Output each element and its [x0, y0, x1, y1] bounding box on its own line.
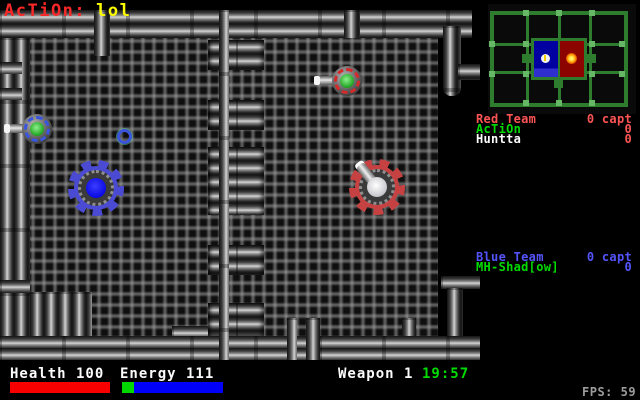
- clan-name-label: AcTiOn:: [4, 1, 86, 21]
- game-window: AcTiOn:lol Red Team: [0, 0, 640, 400]
- player-name: MH-Shad[ow]: [476, 262, 559, 272]
- fps-counter: FPS: 59: [582, 385, 636, 399]
- pipe-stub-left-2: [0, 88, 22, 100]
- minimap-red-base: [560, 41, 584, 77]
- minimap-blue-base: [534, 41, 558, 77]
- pipe-stub-left-1: [0, 62, 22, 74]
- health-label: Health 100: [10, 368, 104, 380]
- pipe-joint-top-2: [344, 10, 360, 38]
- energy-label: Energy 111: [120, 368, 214, 380]
- minimap-walls: [490, 11, 628, 107]
- map-name-label: lol: [96, 1, 131, 21]
- pipe-right-bottom-vertical: [447, 288, 463, 336]
- top-hud-label: AcTiOn:lol: [4, 1, 131, 21]
- player-row: Huntta 0: [476, 134, 638, 144]
- pipe-foot-1: [172, 326, 208, 336]
- player-score: 0: [624, 134, 632, 144]
- pillar-chunk-3: [208, 147, 264, 215]
- match-timer: 19:57: [422, 368, 469, 380]
- energy-bar: [122, 382, 223, 393]
- thin-pipe-central: [219, 10, 229, 360]
- red-gear-robot-sprite: [349, 159, 405, 215]
- minimap-center-bases: [531, 38, 587, 80]
- white-flag-marker-icon: [541, 54, 550, 63]
- pipe-stub-left-3: [0, 280, 30, 293]
- green-core-icon: [30, 122, 44, 136]
- orange-flame-marker-icon: [566, 53, 577, 64]
- turret-red-marks-sprite: [330, 64, 364, 98]
- pipe-corner-bottom-left: [30, 292, 92, 336]
- pickup-ring-sprite: [117, 129, 132, 144]
- status-bar: Health 100 Energy 111 Weapon 1 19:57 FPS…: [0, 360, 640, 400]
- turret-blue-marks-sprite: [20, 112, 54, 146]
- pillar-chunk-2: [208, 100, 264, 130]
- pipe-right-top-vertical: [443, 26, 461, 96]
- player-score: 0: [624, 262, 632, 272]
- sidebar: Red Team 0 capt AcTiOn 0 Huntta 0 Blue T…: [480, 0, 640, 400]
- minimap-connector-right: [586, 54, 596, 63]
- minimap-tick-marks: [494, 15, 500, 21]
- pipe-wall-bottom-row2: [0, 348, 480, 360]
- pipe-wall-left: [0, 38, 30, 360]
- blue-gear-robot-sprite: [68, 160, 124, 216]
- weapon-label: Weapon 1: [338, 368, 413, 380]
- pipe-right-top-stub: [458, 64, 480, 80]
- energy-bar-overcharge-segment: [122, 382, 134, 393]
- pillar-chunk-5: [208, 303, 264, 336]
- energy-bar-main-segment: [134, 382, 223, 393]
- player-row: MH-Shad[ow] 0: [476, 262, 638, 272]
- player-name: Huntta: [476, 134, 521, 144]
- minimap: [488, 4, 636, 114]
- health-bar: [10, 382, 110, 393]
- pillar-chunk-1: [208, 40, 264, 70]
- pillar-chunk-4: [208, 245, 264, 275]
- game-viewport[interactable]: AcTiOn:lol: [0, 0, 480, 360]
- thin-pipe-bottom: [287, 318, 297, 360]
- green-core-icon: [340, 74, 354, 88]
- pipe-wall-bottom-row1: [0, 336, 480, 348]
- pipe-foot-2: [306, 318, 320, 360]
- pipe-foot-3: [402, 318, 416, 336]
- pipe-wall-top-row2: [0, 24, 472, 38]
